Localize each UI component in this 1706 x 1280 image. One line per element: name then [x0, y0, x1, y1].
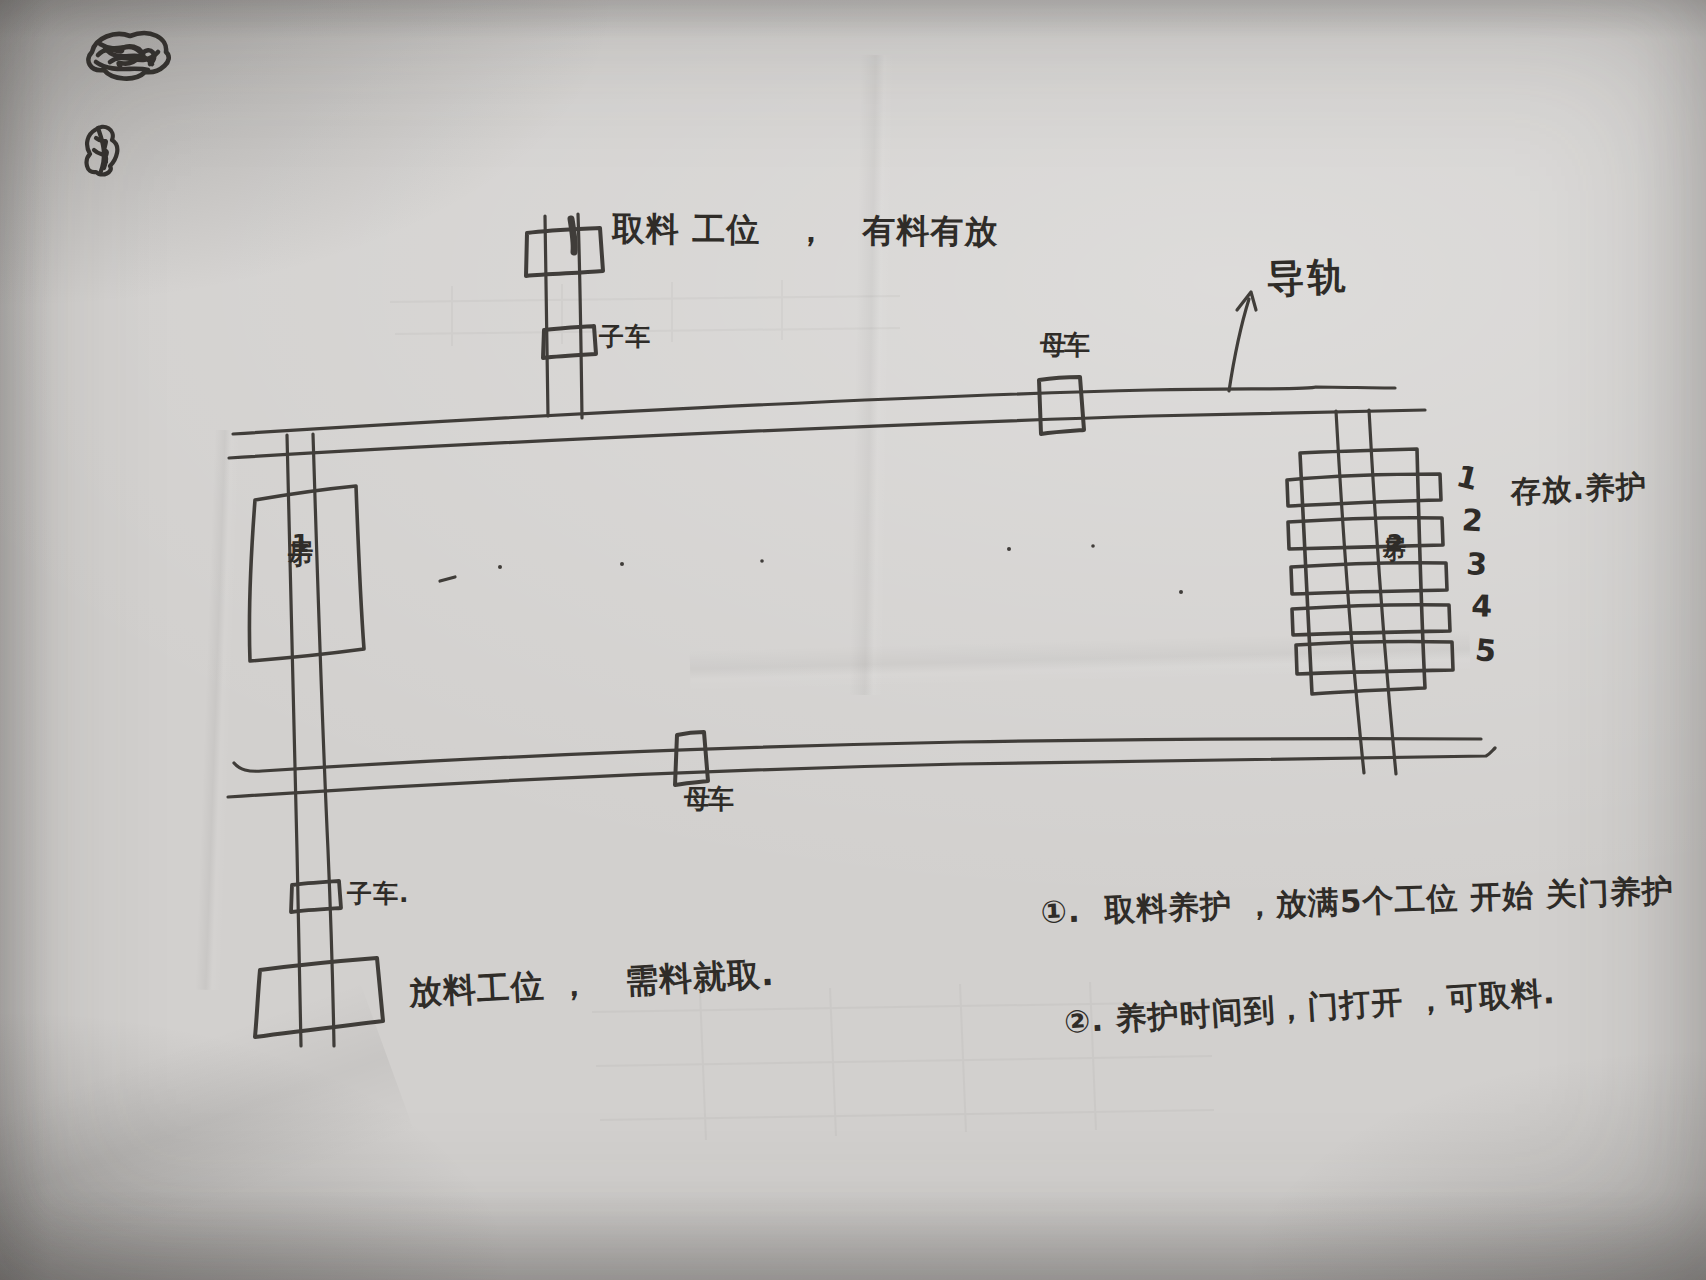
storage-label: 存放.养护 [1510, 470, 1648, 507]
rack-slot-bar [1292, 605, 1450, 635]
rack-slot-bar [1291, 563, 1447, 594]
house-left-label: 房子1 [284, 517, 317, 564]
house-right-label: 房子2 [1380, 514, 1411, 564]
storage-rack [1287, 410, 1453, 774]
rack-slot-bar [1296, 642, 1453, 674]
rack-slot-number-2: 2 [1461, 504, 1485, 537]
top-mother-cart-label: 母车 [1040, 332, 1088, 359]
discharge-station-box [255, 958, 383, 1037]
guide-rail-label: 导轨 [1266, 257, 1349, 300]
bottom-sub-cart-label: 子车. [347, 881, 410, 907]
pickup-station-label: 取料 工位 ， 有料有放 [612, 212, 999, 249]
bottom-mother-cart-label: 母车 [684, 786, 732, 813]
pickup-station-box [526, 219, 603, 276]
rack-slot-number-5: 5 [1474, 634, 1499, 668]
rack-slot-number-4: 4 [1471, 590, 1494, 622]
pen-specks [498, 544, 1183, 594]
rack-slot-number-3: 3 [1465, 548, 1488, 581]
pen-tick [440, 577, 455, 581]
top-rail [229, 387, 1425, 458]
bottom-mother-cart-box [675, 732, 708, 785]
scribble-blob-small [87, 127, 118, 175]
bottom-rail [228, 739, 1495, 797]
pickup-sub-cart-label: 子车 [599, 324, 651, 350]
guide-rail-arrow [1229, 292, 1256, 391]
paper-photo: 取料 工位 ， 有料有放 子车 导轨 母车 房子1 母车 子车. 放料工位 ， … [0, 0, 1706, 1280]
scribble-blob-top [88, 33, 168, 78]
hand-drawn-diagram [0, 0, 1706, 1280]
house-left-box [249, 486, 364, 661]
top-mother-cart-box [1039, 377, 1084, 434]
